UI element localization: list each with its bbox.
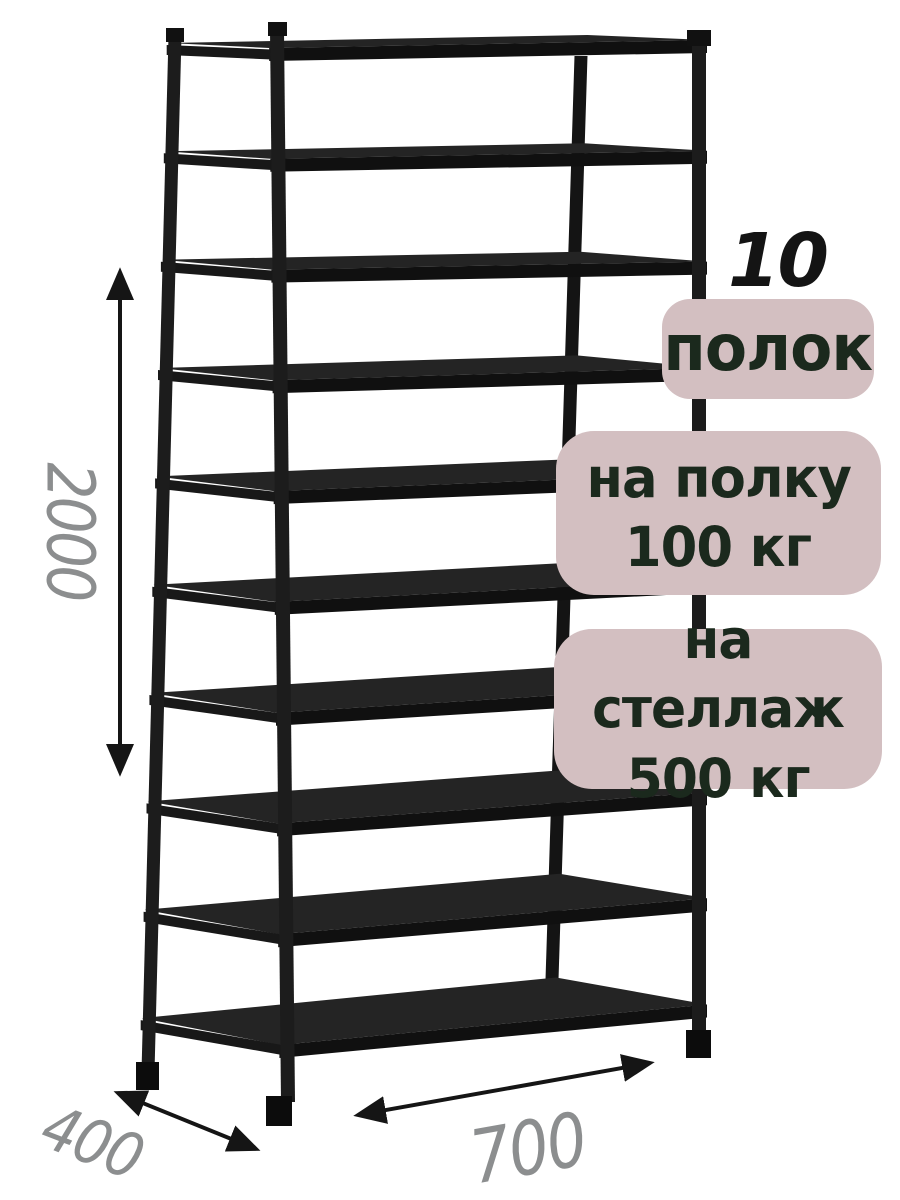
per-shelf-load-line2: 100 кг [625,513,811,582]
per-rack-load-badge: на стеллаж 500 кг [554,629,882,789]
product-image-canvas: 2000 400 700 10 полок на полку 100 кг на… [0,0,900,1200]
per-shelf-load-badge: на полку 100 кг [556,431,881,595]
height-dimension-label: 2000 [32,462,109,599]
foot-front-left [266,1096,292,1126]
width-dimension-arrow [358,1063,650,1115]
shelf-count-badge: полок [662,299,874,399]
post-cap-back-left [166,28,184,42]
shelf-count-badge-label: полок [664,317,873,381]
post-cap-front-left [268,22,287,36]
per-rack-load-line1: на стеллаж [561,605,876,743]
per-shelf-load-line1: на полку [586,444,850,513]
post-cap-front-right [687,30,711,46]
shelf-count-number: 10 [720,224,835,298]
width-dimension-label: 700 [464,1097,592,1200]
foot-back-left [136,1062,159,1090]
foot-front-right [686,1030,711,1058]
per-rack-load-line2: 500 кг [627,744,810,813]
shelving-rack-illustration [0,0,900,1200]
